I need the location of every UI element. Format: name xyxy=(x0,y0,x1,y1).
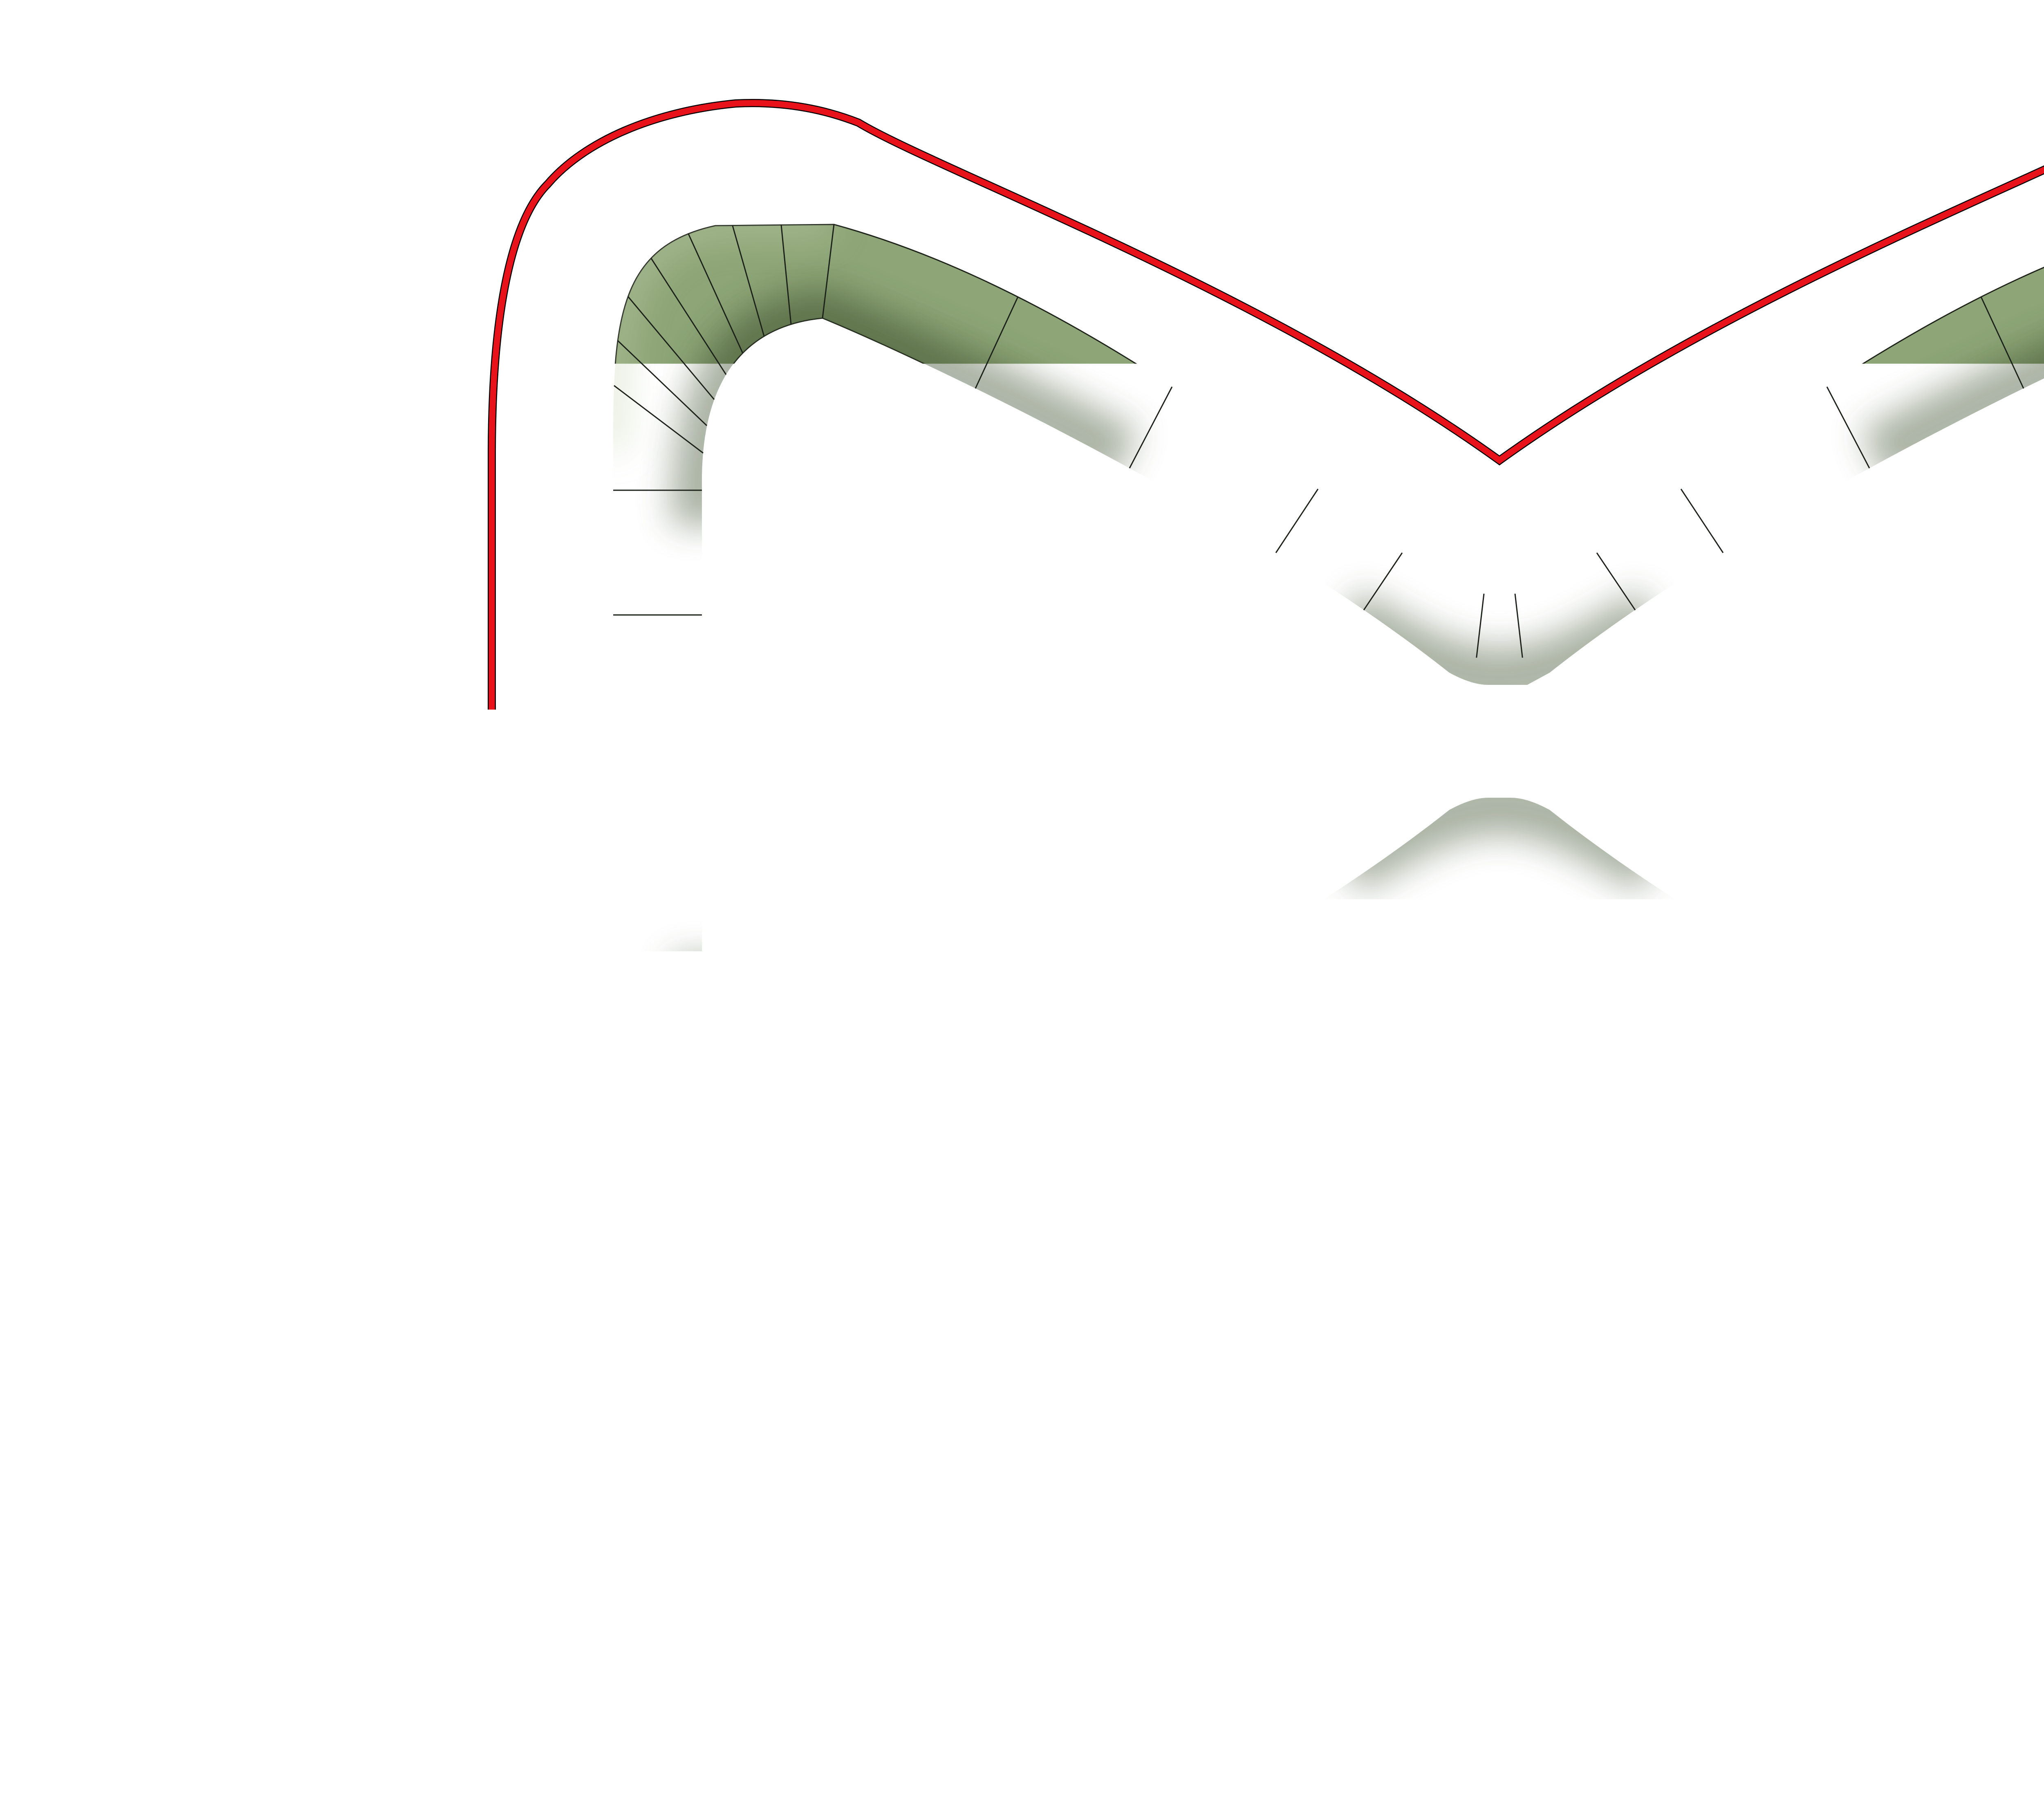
svg-text:27,66 m: 27,66 m xyxy=(1425,1410,1571,1455)
svg-text:31,66 m: 31,66 m xyxy=(1426,1483,1572,1528)
